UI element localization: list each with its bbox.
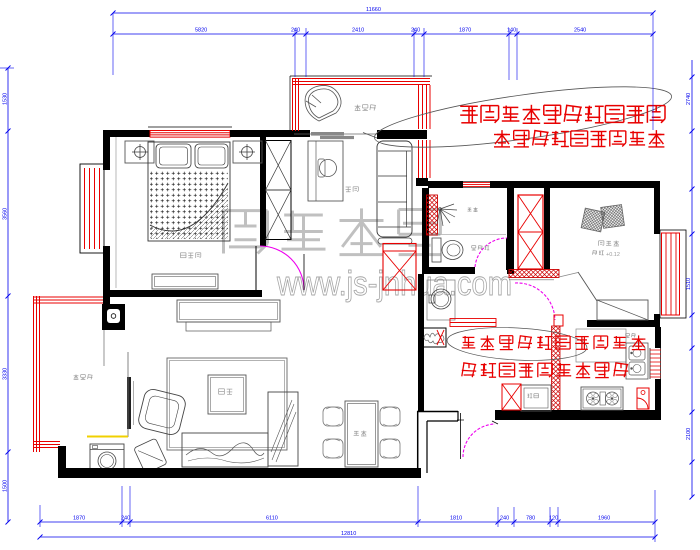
svg-text:1510: 1510 [686,278,692,290]
svg-text:240: 240 [121,516,130,522]
svg-text:2410: 2410 [352,28,364,34]
svg-text:1960: 1960 [598,516,610,522]
svg-text:2540: 2540 [574,28,586,34]
svg-text:2740: 2740 [686,93,692,105]
svg-text:5820: 5820 [195,28,207,34]
svg-text:1530: 1530 [3,93,9,105]
svg-text:240: 240 [500,516,509,522]
svg-text:www.js-jnhua.com: www.js-jnhua.com [276,265,512,303]
svg-text:3330: 3330 [3,368,9,380]
svg-text:120: 120 [549,516,558,522]
svg-text:11660: 11660 [366,7,381,13]
svg-text:140: 140 [507,28,516,34]
svg-text:240: 240 [411,28,420,34]
svg-text:780: 780 [526,516,535,522]
svg-text:+0.12: +0.12 [606,252,620,258]
svg-text:240: 240 [291,28,300,34]
svg-text:1870: 1870 [73,516,85,522]
svg-text:3560: 3560 [3,208,9,220]
svg-text:6110: 6110 [266,516,278,522]
svg-text:1810: 1810 [450,516,462,522]
svg-text:1500: 1500 [3,480,9,492]
svg-text:1870: 1870 [459,28,471,34]
svg-text:2100: 2100 [686,428,692,440]
svg-text:12810: 12810 [341,531,356,537]
